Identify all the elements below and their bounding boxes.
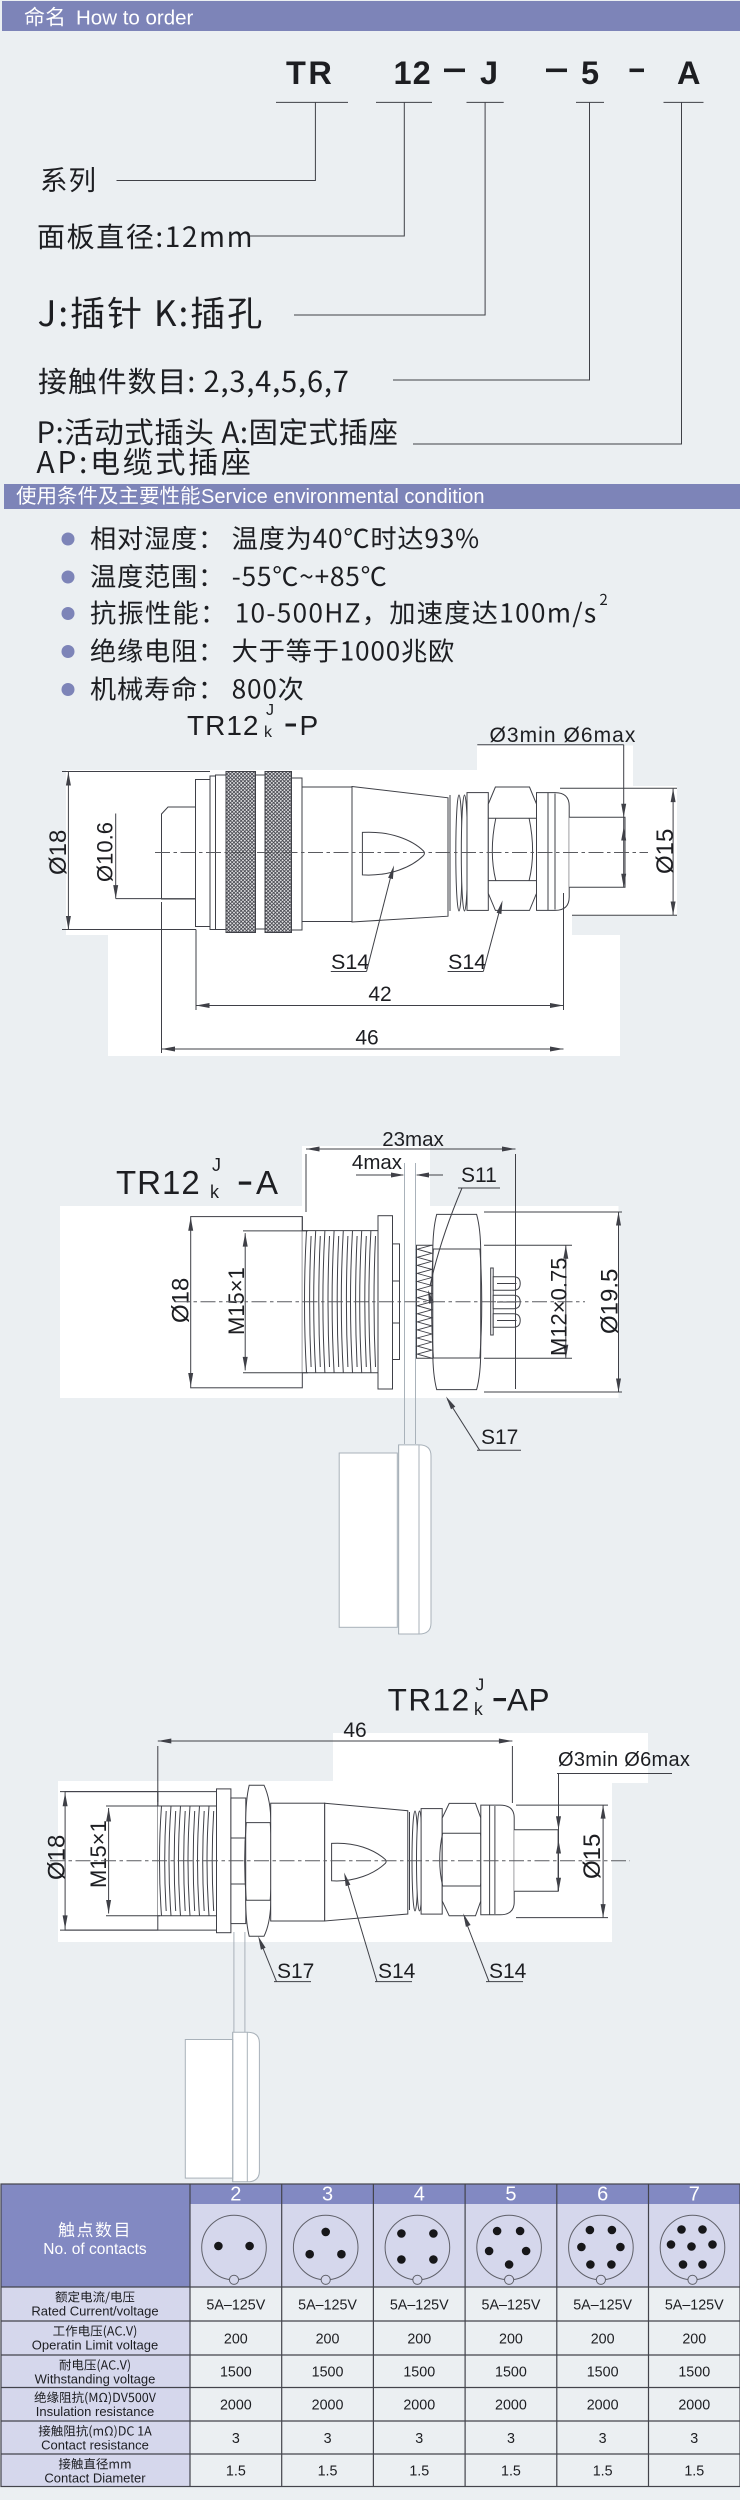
svg-text:Operatin Limit voltage: Operatin Limit voltage (32, 2338, 158, 2353)
svg-text:46: 46 (355, 1027, 378, 1050)
svg-text:1.5: 1.5 (593, 2464, 613, 2480)
svg-text:Ø15: Ø15 (652, 829, 679, 874)
svg-text:2000: 2000 (495, 2398, 527, 2414)
svg-text:5A–125V: 5A–125V (206, 2297, 265, 2313)
svg-text:Insulation resistance: Insulation resistance (36, 2404, 155, 2419)
svg-text:5A–125V: 5A–125V (482, 2297, 541, 2313)
svg-text:3: 3 (415, 2431, 423, 2447)
svg-text:Ø10.6: Ø10.6 (93, 822, 118, 882)
svg-text:1500: 1500 (312, 2365, 344, 2381)
svg-text:2000: 2000 (587, 2398, 619, 2414)
svg-text:M15×1: M15×1 (86, 1820, 111, 1888)
svg-text:Ø18: Ø18 (44, 1835, 71, 1880)
svg-text:1.5: 1.5 (684, 2464, 704, 2480)
svg-text:2000: 2000 (220, 2398, 252, 2414)
svg-text:S14: S14 (378, 1960, 416, 1983)
svg-text:A: A (677, 55, 700, 91)
svg-text:S17: S17 (277, 1960, 314, 1983)
svg-text:M12×0.75: M12×0.75 (547, 1258, 572, 1356)
svg-text:200: 200 (682, 2331, 706, 2347)
svg-text:Service environmental conditio: Service environmental condition (201, 486, 485, 508)
svg-text:1500: 1500 (495, 2365, 527, 2381)
svg-text:How to order: How to order (76, 7, 194, 30)
svg-text:2000: 2000 (678, 2398, 710, 2414)
svg-text:1500: 1500 (220, 2365, 252, 2381)
svg-text:TR12: TR12 (388, 1682, 471, 1718)
svg-text:200: 200 (591, 2331, 615, 2347)
svg-text:2: 2 (230, 2184, 241, 2206)
svg-text:S17: S17 (481, 1426, 518, 1449)
svg-text:k: k (264, 724, 273, 741)
svg-text:J: J (476, 1675, 485, 1695)
svg-text:5: 5 (505, 2184, 516, 2206)
svg-text:J: J (212, 1155, 221, 1175)
svg-text:200: 200 (407, 2331, 431, 2347)
svg-text:k: k (210, 1182, 220, 1202)
svg-text:5: 5 (581, 55, 599, 91)
svg-text:5A–125V: 5A–125V (390, 2297, 449, 2313)
svg-text:S14: S14 (489, 1960, 527, 1983)
svg-text:Ø3min Ø6max: Ø3min Ø6max (490, 724, 637, 747)
svg-text:Ø3min Ø6max: Ø3min Ø6max (558, 1749, 690, 1771)
svg-text:TR12: TR12 (116, 1164, 201, 1201)
svg-text:3: 3 (690, 2431, 698, 2447)
svg-text:Contact resistance: Contact resistance (41, 2438, 149, 2453)
svg-text:S11: S11 (461, 1164, 497, 1187)
svg-text:4: 4 (414, 2184, 425, 2206)
svg-text:A: A (256, 1164, 278, 1201)
svg-text:6: 6 (597, 2184, 608, 2206)
svg-text:5A–125V: 5A–125V (298, 2297, 357, 2313)
svg-text:S14: S14 (448, 950, 486, 974)
svg-text:3: 3 (322, 2184, 333, 2206)
svg-text:3: 3 (507, 2431, 515, 2447)
svg-text:Ø18: Ø18 (45, 830, 72, 875)
svg-text:1500: 1500 (678, 2365, 710, 2381)
svg-text:M15×1: M15×1 (224, 1267, 249, 1335)
svg-text:Withstanding voltage: Withstanding voltage (35, 2372, 156, 2387)
svg-text:5A–125V: 5A–125V (573, 2297, 632, 2313)
svg-text:J: J (480, 55, 498, 91)
svg-text:1500: 1500 (587, 2365, 619, 2381)
svg-text:3: 3 (232, 2431, 240, 2447)
svg-text:Rated Current/voltage: Rated Current/voltage (31, 2304, 158, 2319)
svg-text:k: k (474, 1699, 483, 1719)
svg-text:42: 42 (368, 983, 391, 1006)
svg-text:200: 200 (499, 2331, 523, 2347)
svg-text:1500: 1500 (403, 2365, 435, 2381)
svg-text:1.5: 1.5 (226, 2464, 246, 2480)
svg-text:P: P (300, 710, 319, 741)
svg-text:23max: 23max (382, 1128, 444, 1151)
svg-text:3: 3 (324, 2431, 332, 2447)
svg-text:S14: S14 (331, 950, 369, 974)
svg-text:2000: 2000 (403, 2398, 435, 2414)
svg-text:TR12: TR12 (187, 710, 259, 741)
svg-text:TR: TR (286, 55, 334, 91)
svg-text:Contact Diameter: Contact Diameter (44, 2471, 146, 2486)
svg-text:Ø19.5: Ø19.5 (597, 1269, 624, 1334)
svg-text:7: 7 (689, 2184, 700, 2206)
svg-text:1.5: 1.5 (501, 2464, 521, 2480)
svg-text:200: 200 (316, 2331, 340, 2347)
svg-text:12: 12 (394, 55, 432, 91)
svg-text:4max: 4max (352, 1151, 403, 1174)
svg-text:AP: AP (507, 1682, 550, 1718)
svg-text:Ø15: Ø15 (579, 1834, 606, 1879)
svg-text:Ø18: Ø18 (168, 1278, 195, 1323)
svg-text:5A–125V: 5A–125V (665, 2297, 724, 2313)
svg-text:3: 3 (599, 2431, 607, 2447)
svg-text:J: J (266, 702, 274, 719)
svg-text:46: 46 (343, 1719, 366, 1742)
svg-text:2000: 2000 (312, 2398, 344, 2414)
svg-text:1.5: 1.5 (409, 2464, 429, 2480)
svg-text:No. of contacts: No. of contacts (43, 2241, 147, 2258)
svg-text:200: 200 (224, 2331, 248, 2347)
svg-text:1.5: 1.5 (318, 2464, 338, 2480)
